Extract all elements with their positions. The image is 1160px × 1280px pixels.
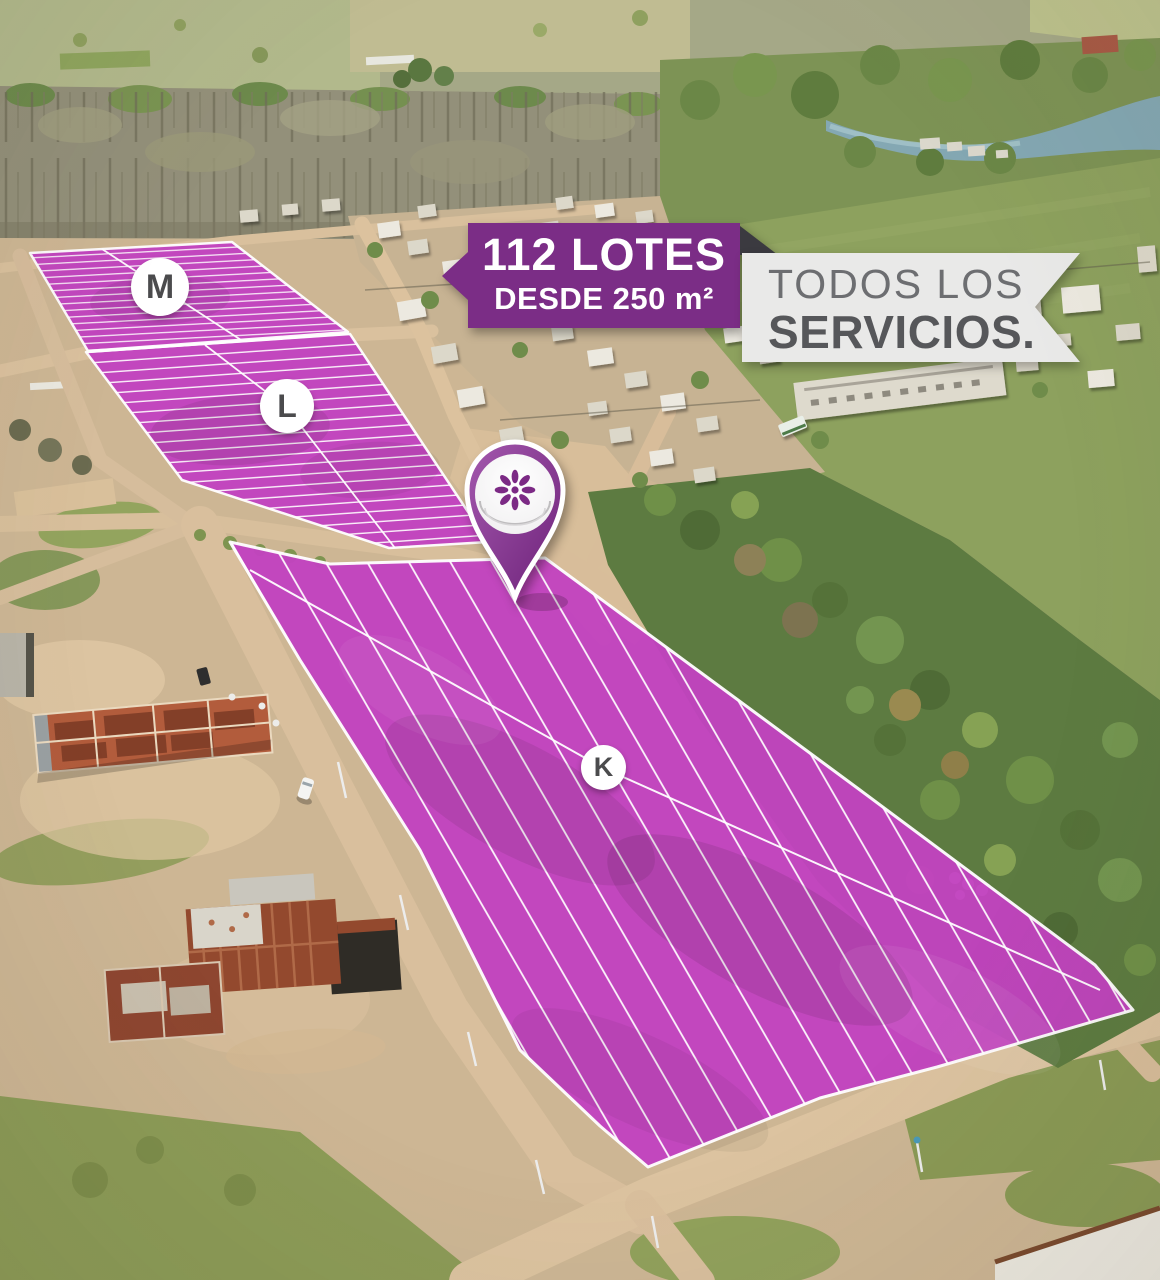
lots-size-text: DESDE 250 m² [468,280,740,317]
block-letter: K [594,752,614,783]
real-estate-aerial-ad: M L K 112 LOTES DESDE 250 m² TODOS LOS S… [0,0,1160,1280]
block-letter: M [146,268,174,307]
location-pin-icon [452,433,578,605]
services-text-top: TODOS LOS [768,262,1035,307]
petal-flower-logo-icon [495,470,536,511]
lots-banner: 112 LOTES DESDE 250 m² [442,223,778,328]
block-label-l: L [260,379,314,433]
services-text-bottom: SERVICIOS. [768,307,1035,357]
block-label-m: M [131,258,189,316]
aerial-photo [0,0,1160,1280]
red-roof-building [1081,35,1118,54]
block-letter: L [277,388,297,425]
edge-building-shadow [26,633,34,697]
lots-count-text: 112 LOTES [468,230,740,280]
block-label-k: K [581,745,626,790]
services-banner: TODOS LOS SERVICIOS. [742,251,1088,364]
lamp-head [914,1137,921,1144]
